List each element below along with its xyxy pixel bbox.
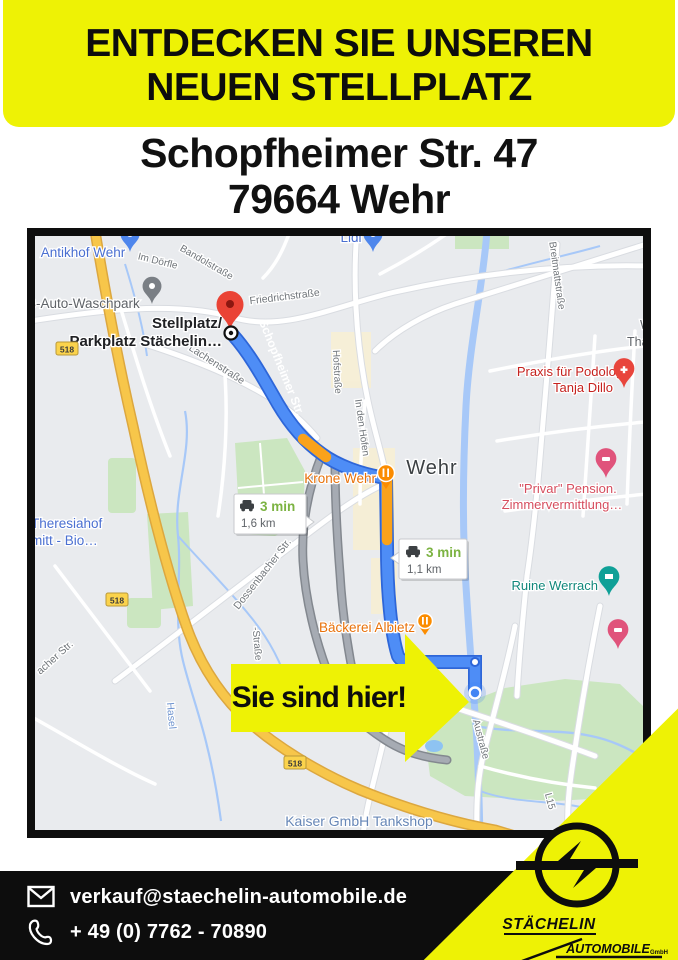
svg-text:"Privar" Pension.: "Privar" Pension. xyxy=(519,481,616,496)
svg-text:Parkplatz Stächelin…: Parkplatz Stächelin… xyxy=(69,333,222,350)
header-line-1: ENTDECKEN SIE UNSEREN xyxy=(85,22,592,66)
svg-text:3 min: 3 min xyxy=(426,545,461,560)
svg-text:Thai Ma: Thai Ma xyxy=(627,335,643,349)
route-waypoint-dot xyxy=(471,658,479,666)
you-are-here-callout: Sie sind hier! xyxy=(231,630,471,778)
svg-text:Krone Wehr: Krone Wehr xyxy=(304,471,376,486)
route-bubble-2: 3 min 1,1 km xyxy=(391,539,469,581)
logo-name: STÄCHELIN xyxy=(502,916,596,933)
svg-text:Antikhof Wehr: Antikhof Wehr xyxy=(41,245,126,260)
svg-text:3 min: 3 min xyxy=(260,499,295,514)
envelope-icon xyxy=(27,885,55,909)
svg-text:1,6 km: 1,6 km xyxy=(241,518,276,530)
header-banner: ENTDECKEN SIE UNSEREN NEUEN STELLPLATZ xyxy=(3,0,675,127)
svg-text:518: 518 xyxy=(110,596,124,606)
logo-line2: AUTOMOBILE xyxy=(565,942,650,956)
header-line-2: NEUEN STELLPLATZ xyxy=(146,66,532,110)
svg-text:518: 518 xyxy=(60,345,74,355)
svg-text:Theresiahof: Theresiahof xyxy=(35,516,103,531)
svg-text:Stellplatz/: Stellplatz/ xyxy=(152,315,223,332)
river-label: Hasel xyxy=(164,702,178,730)
phone-icon xyxy=(27,918,55,946)
svg-text:1,1 km: 1,1 km xyxy=(407,564,442,576)
svg-text:B-Auto-Waschpark: B-Auto-Waschpark xyxy=(35,296,140,311)
logo-suffix: GmbH xyxy=(650,950,668,956)
route-bubble-1: 3 min 1,6 km xyxy=(234,494,314,536)
address-city: 79664 Wehr xyxy=(0,177,678,223)
email-text: verkauf@staechelin-automobile.de xyxy=(70,886,407,909)
opel-blitz-icon xyxy=(516,841,638,888)
flyer-page: ENTDECKEN SIE UNSEREN NEUEN STELLPLATZ S… xyxy=(0,0,678,960)
svg-text:Lidl: Lidl xyxy=(340,236,361,245)
city-label: Wehr xyxy=(406,457,457,479)
current-location-dot xyxy=(470,688,481,699)
svg-text:Hofstraße: Hofstraße xyxy=(330,350,343,395)
address-block: Schopfheimer Str. 47 79664 Wehr xyxy=(0,131,678,223)
phone-text: + 49 (0) 7762 - 70890 xyxy=(70,921,267,944)
callout-text: Sie sind hier! xyxy=(231,664,407,732)
svg-text:We: We xyxy=(640,318,643,332)
svg-text:Kaiser GmbH Tankshop: Kaiser GmbH Tankshop xyxy=(285,813,433,829)
dealer-logo: STÄCHELIN AUTOMOBILE GmbH xyxy=(498,810,678,960)
svg-text:Zimmervermittlung…: Zimmervermittlung… xyxy=(502,497,623,512)
address-street: Schopfheimer Str. 47 xyxy=(0,131,678,177)
svg-text:Ruine Werrach: Ruine Werrach xyxy=(512,578,598,593)
svg-text:mitt - Bio…: mitt - Bio… xyxy=(35,533,98,548)
svg-text:Tanja Dillo: Tanja Dillo xyxy=(553,380,613,395)
